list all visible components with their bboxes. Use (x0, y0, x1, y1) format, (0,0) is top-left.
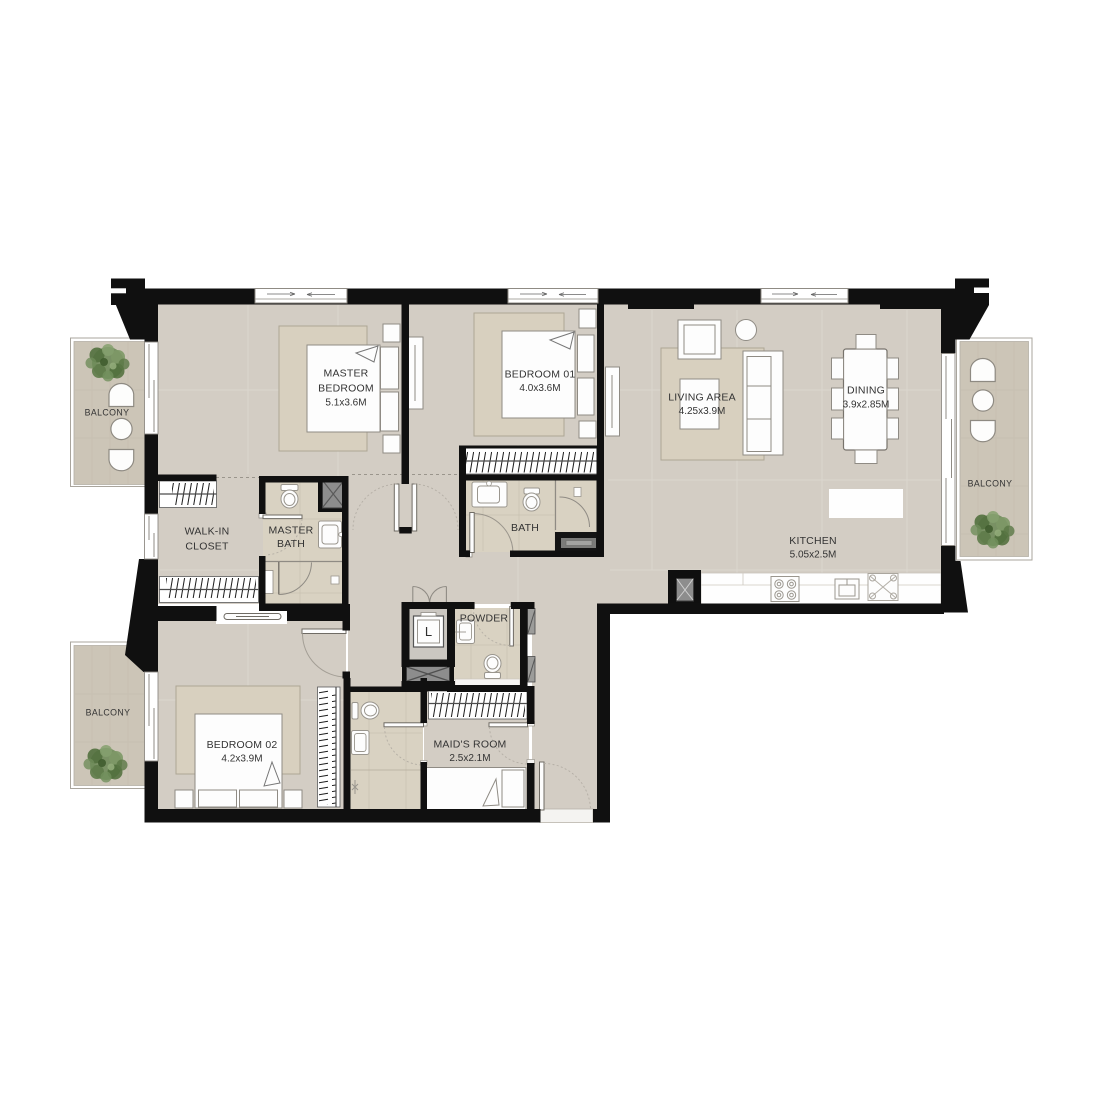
svg-text:LIVING AREA: LIVING AREA (668, 392, 736, 404)
svg-text:BALCONY: BALCONY (968, 479, 1013, 489)
svg-text:MASTER: MASTER (269, 525, 314, 537)
svg-text:POWDER: POWDER (460, 613, 509, 625)
svg-text:MASTER: MASTER (324, 368, 369, 380)
svg-text:KITCHEN: KITCHEN (789, 535, 837, 547)
svg-text:4.0x3.6M: 4.0x3.6M (519, 383, 560, 394)
svg-text:5.05x2.5M: 5.05x2.5M (790, 550, 837, 561)
svg-text:BEDROOM 01: BEDROOM 01 (505, 369, 576, 381)
svg-text:BEDROOM: BEDROOM (318, 383, 374, 395)
svg-text:3.9x2.85M: 3.9x2.85M (843, 400, 890, 411)
svg-text:L: L (425, 624, 432, 639)
svg-text:4.2x3.9M: 4.2x3.9M (221, 754, 262, 765)
svg-text:BATH: BATH (511, 522, 539, 534)
svg-text:BALCONY: BALCONY (85, 408, 130, 418)
svg-text:BATH: BATH (277, 538, 305, 550)
svg-text:DINING: DINING (847, 385, 885, 397)
svg-text:CLOSET: CLOSET (185, 541, 229, 553)
svg-text:2.5x2.1M: 2.5x2.1M (449, 753, 490, 764)
svg-text:4.25x3.9M: 4.25x3.9M (679, 406, 726, 417)
svg-text:MAID'S ROOM: MAID'S ROOM (433, 739, 506, 751)
svg-text:5.1x3.6M: 5.1x3.6M (325, 398, 366, 409)
svg-text:BALCONY: BALCONY (86, 708, 131, 718)
svg-text:WALK-IN: WALK-IN (185, 526, 230, 538)
svg-text:BEDROOM 02: BEDROOM 02 (207, 739, 278, 751)
